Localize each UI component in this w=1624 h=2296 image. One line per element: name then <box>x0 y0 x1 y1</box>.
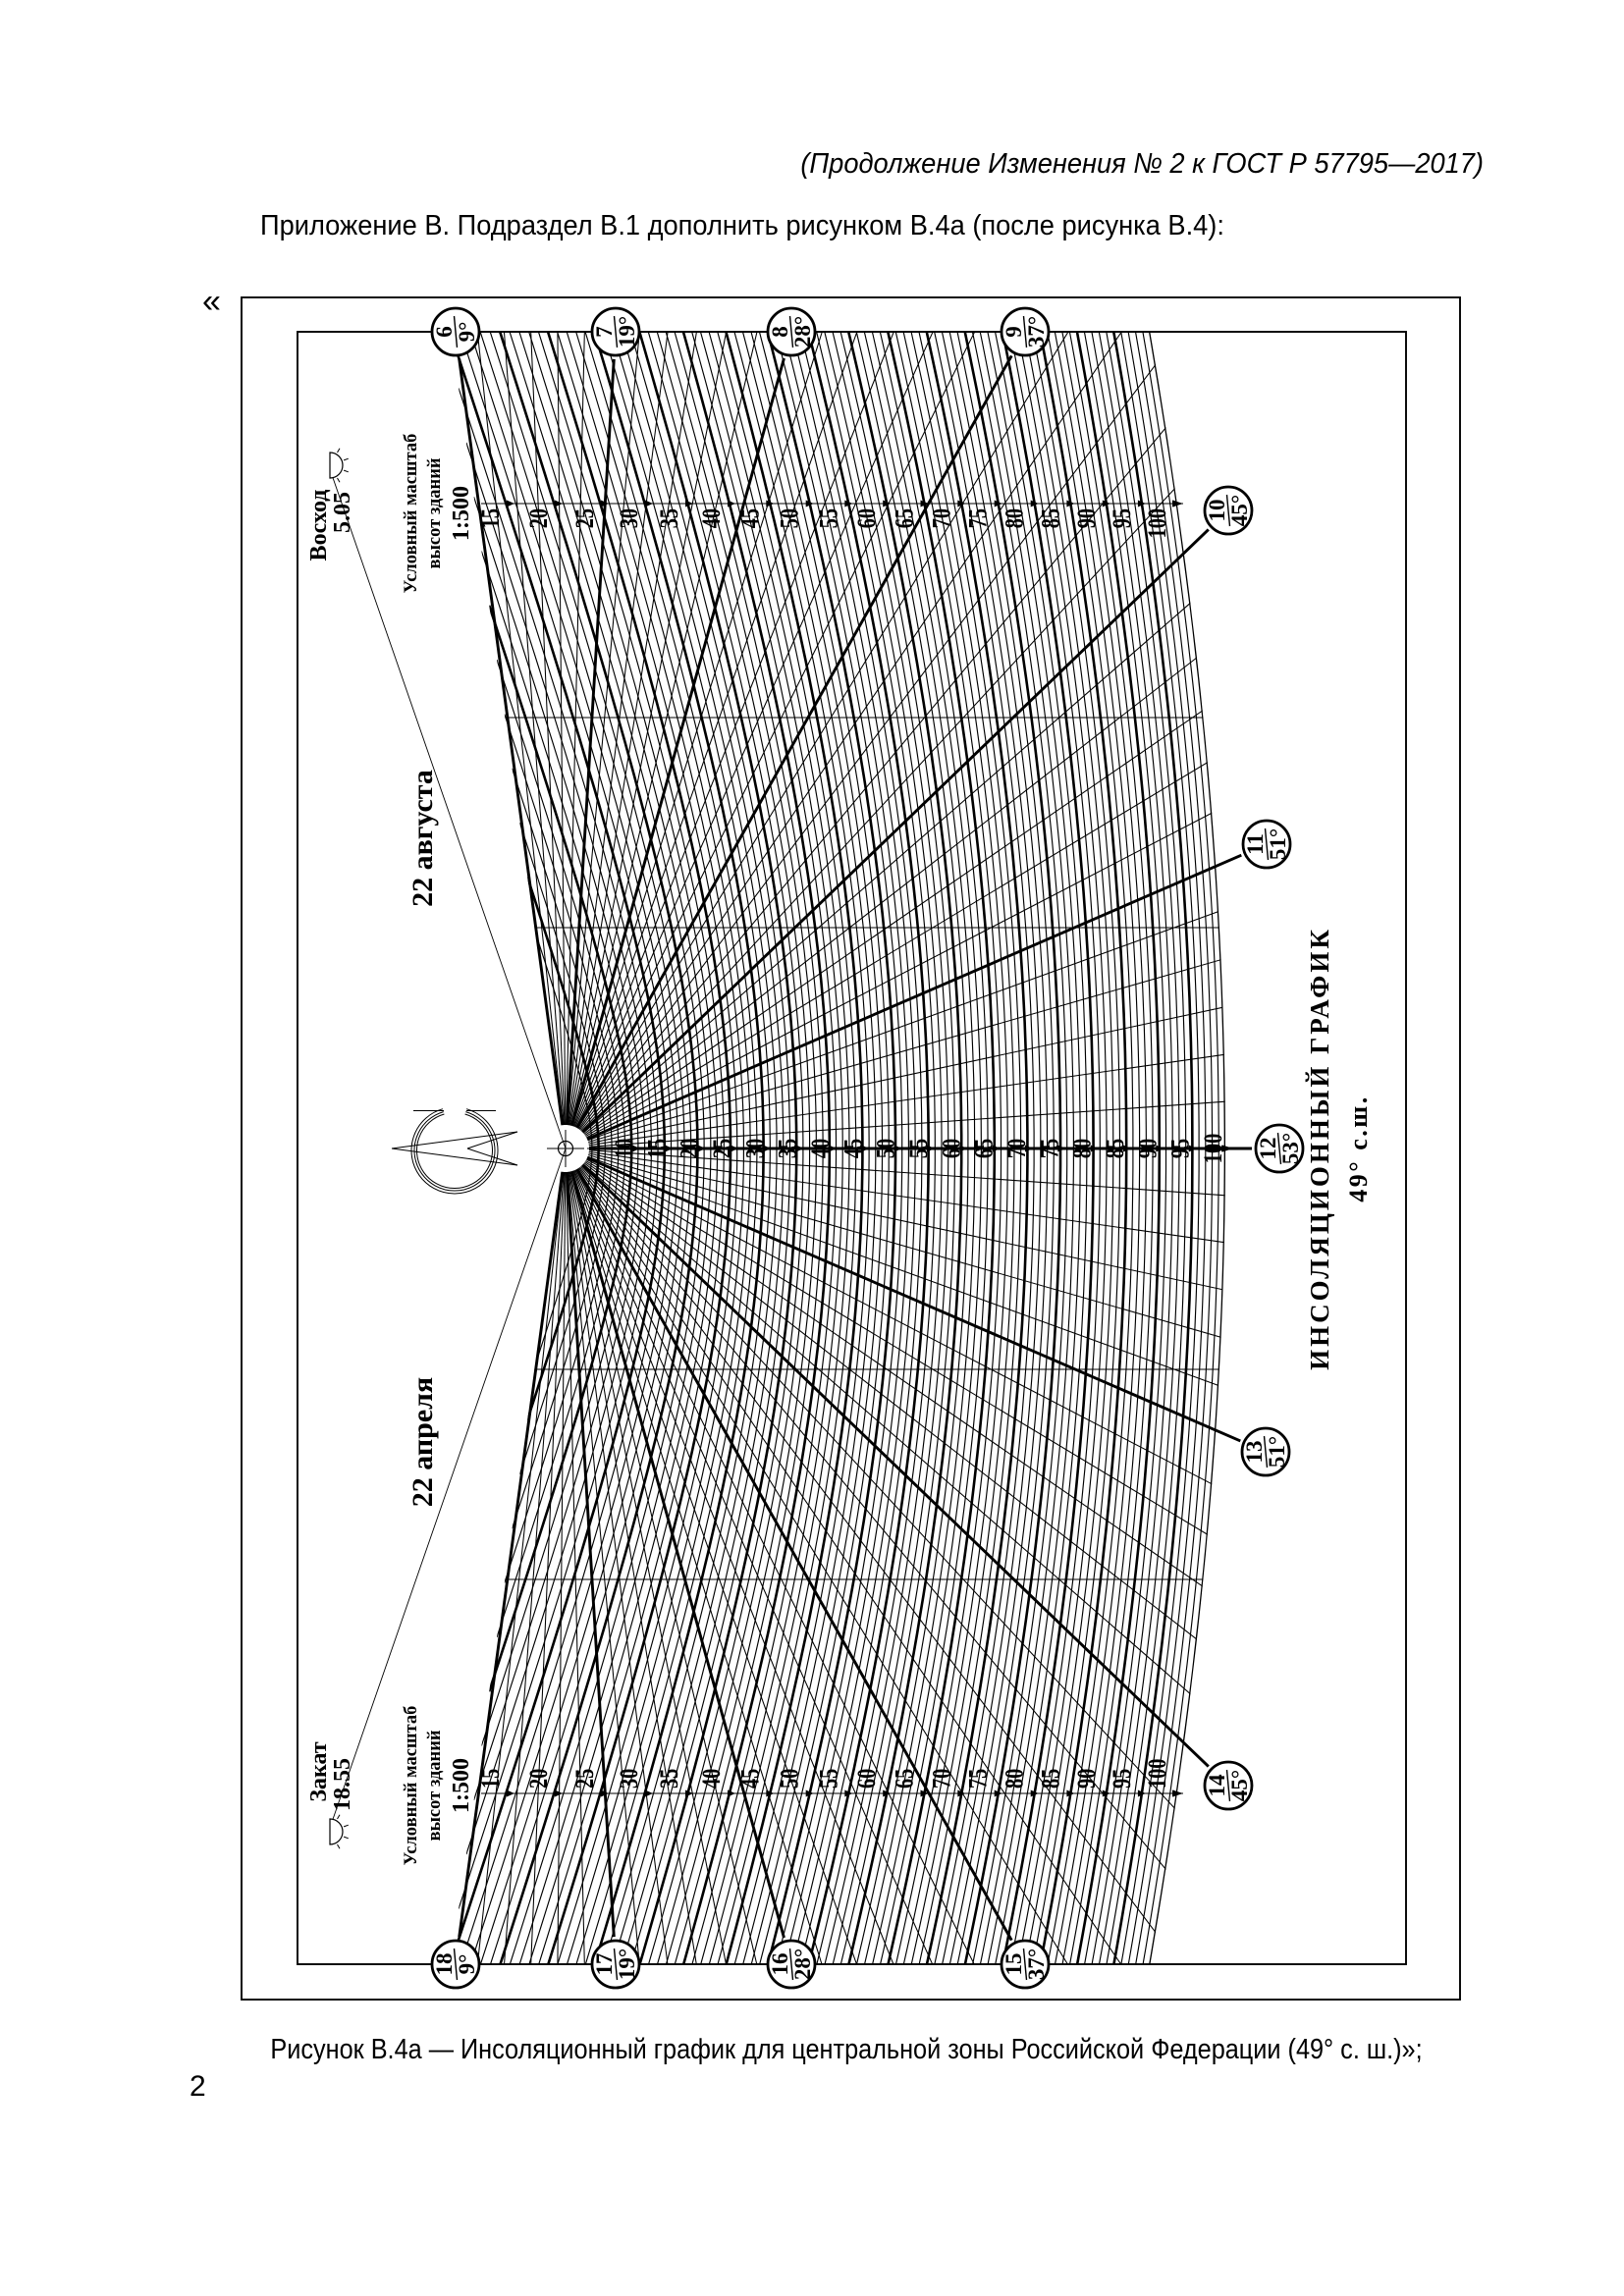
svg-text:30: 30 <box>616 1769 644 1789</box>
svg-text:37°: 37° <box>1024 316 1049 347</box>
svg-text:19°: 19° <box>615 1949 639 1980</box>
svg-text:Рисунок В.4а — Инсоляционный г: Рисунок В.4а — Инсоляционный график для … <box>270 2032 1422 2064</box>
svg-text:95: 95 <box>1109 508 1137 528</box>
svg-text:100: 100 <box>1200 1134 1228 1163</box>
svg-text:65: 65 <box>891 1769 919 1789</box>
svg-text:51°: 51° <box>1266 828 1290 860</box>
svg-text:высот зданий: высот зданий <box>425 457 445 568</box>
svg-text:5.05: 5.05 <box>330 492 355 533</box>
svg-text:11: 11 <box>1243 833 1268 855</box>
svg-text:15: 15 <box>477 508 506 528</box>
svg-text:«: « <box>202 283 221 320</box>
svg-text:95: 95 <box>1166 1139 1195 1158</box>
svg-text:65: 65 <box>970 1139 999 1158</box>
svg-text:90: 90 <box>1134 1139 1163 1158</box>
svg-text:40: 40 <box>698 1769 727 1789</box>
svg-text:95: 95 <box>1109 1769 1137 1789</box>
svg-text:7: 7 <box>592 326 617 338</box>
svg-text:30: 30 <box>741 1139 770 1158</box>
svg-text:12: 12 <box>1256 1138 1280 1160</box>
svg-text:15: 15 <box>1001 1953 1026 1976</box>
svg-text:25: 25 <box>571 508 600 528</box>
svg-text:53°: 53° <box>1278 1133 1303 1164</box>
svg-text:25: 25 <box>709 1139 737 1158</box>
svg-text:85: 85 <box>1102 1139 1130 1158</box>
svg-text:35: 35 <box>656 508 684 528</box>
svg-text:20: 20 <box>525 1769 554 1789</box>
svg-text:65: 65 <box>891 508 919 528</box>
svg-text:Условный масштаб: Условный масштаб <box>402 434 421 594</box>
svg-text:75: 75 <box>964 1769 993 1789</box>
svg-text:45: 45 <box>736 1769 765 1789</box>
svg-text:90: 90 <box>1072 508 1101 528</box>
svg-text:75: 75 <box>1036 1139 1064 1158</box>
svg-text:20: 20 <box>525 508 554 528</box>
svg-text:51°: 51° <box>1265 1436 1289 1468</box>
svg-text:6: 6 <box>432 326 457 338</box>
svg-text:80: 80 <box>1001 508 1029 528</box>
svg-text:60: 60 <box>853 508 882 528</box>
svg-text:22 апреля: 22 апреля <box>406 1377 439 1507</box>
svg-text:9°: 9° <box>455 1954 479 1975</box>
svg-text:Условный масштаб: Условный масштаб <box>402 1706 421 1866</box>
svg-text:19°: 19° <box>615 316 639 347</box>
svg-text:Приложение В. Подраздел В.1 до: Приложение В. Подраздел В.1 дополнить ри… <box>260 209 1224 240</box>
svg-text:20: 20 <box>676 1139 704 1158</box>
svg-text:9: 9 <box>1001 326 1026 338</box>
svg-text:28°: 28° <box>790 1949 815 1980</box>
svg-text:55: 55 <box>905 1139 934 1158</box>
svg-text:1:500: 1:500 <box>449 486 474 541</box>
svg-text:25: 25 <box>571 1769 600 1789</box>
svg-text:45: 45 <box>839 1139 868 1158</box>
svg-text:75: 75 <box>964 508 993 528</box>
svg-text:30: 30 <box>616 508 644 528</box>
svg-text:100: 100 <box>1143 1759 1171 1789</box>
svg-text:40: 40 <box>807 1139 836 1158</box>
svg-text:70: 70 <box>928 1769 956 1789</box>
svg-text:16: 16 <box>768 1953 792 1976</box>
svg-text:55: 55 <box>815 1769 843 1789</box>
svg-text:80: 80 <box>1001 1769 1029 1789</box>
svg-text:70: 70 <box>1003 1139 1032 1158</box>
svg-text:45°: 45° <box>1227 495 1252 526</box>
svg-text:2: 2 <box>189 2070 206 2103</box>
svg-text:высот зданий: высот зданий <box>425 1730 445 1841</box>
svg-text:28°: 28° <box>790 316 815 347</box>
svg-text:45: 45 <box>736 508 765 528</box>
svg-text:55: 55 <box>815 508 843 528</box>
svg-text:1:500: 1:500 <box>449 1758 474 1813</box>
svg-text:50: 50 <box>776 1769 804 1789</box>
svg-text:8: 8 <box>768 326 792 338</box>
svg-text:18.55: 18.55 <box>330 1758 355 1811</box>
svg-text:15: 15 <box>477 1769 506 1789</box>
svg-text:37°: 37° <box>1024 1949 1049 1980</box>
svg-text:35: 35 <box>656 1769 684 1789</box>
svg-text:14: 14 <box>1205 1774 1229 1797</box>
svg-text:60: 60 <box>938 1139 966 1158</box>
svg-text:35: 35 <box>774 1139 802 1158</box>
svg-text:15: 15 <box>643 1139 672 1158</box>
svg-text:80: 80 <box>1068 1139 1097 1158</box>
svg-text:49° с.ш.: 49° с.ш. <box>1344 1095 1373 1201</box>
svg-text:40: 40 <box>698 508 727 528</box>
svg-text:85: 85 <box>1037 508 1065 528</box>
svg-text:Восход: Восход <box>306 490 332 561</box>
svg-text:10: 10 <box>1205 500 1229 522</box>
svg-text:22 августа: 22 августа <box>406 770 439 907</box>
svg-text:100: 100 <box>1143 508 1171 538</box>
svg-text:70: 70 <box>928 508 956 528</box>
svg-text:Закат: Закат <box>306 1741 332 1802</box>
svg-text:(Продолжение Изменения № 2 к Г: (Продолжение Изменения № 2 к ГОСТ Р 5779… <box>800 147 1484 179</box>
svg-text:45°: 45° <box>1227 1770 1252 1801</box>
svg-text:13: 13 <box>1242 1441 1267 1464</box>
svg-text:10: 10 <box>611 1139 639 1158</box>
svg-text:9°: 9° <box>455 322 479 343</box>
svg-text:85: 85 <box>1037 1769 1065 1789</box>
svg-text:50: 50 <box>776 508 804 528</box>
svg-text:17: 17 <box>592 1953 617 1976</box>
svg-text:60: 60 <box>853 1769 882 1789</box>
svg-text:18: 18 <box>432 1953 457 1976</box>
svg-text:ИНСОЛЯЦИОННЫЙ ГРАФИК: ИНСОЛЯЦИОННЫЙ ГРАФИК <box>1305 927 1334 1370</box>
svg-text:50: 50 <box>872 1139 900 1158</box>
svg-text:90: 90 <box>1072 1769 1101 1789</box>
